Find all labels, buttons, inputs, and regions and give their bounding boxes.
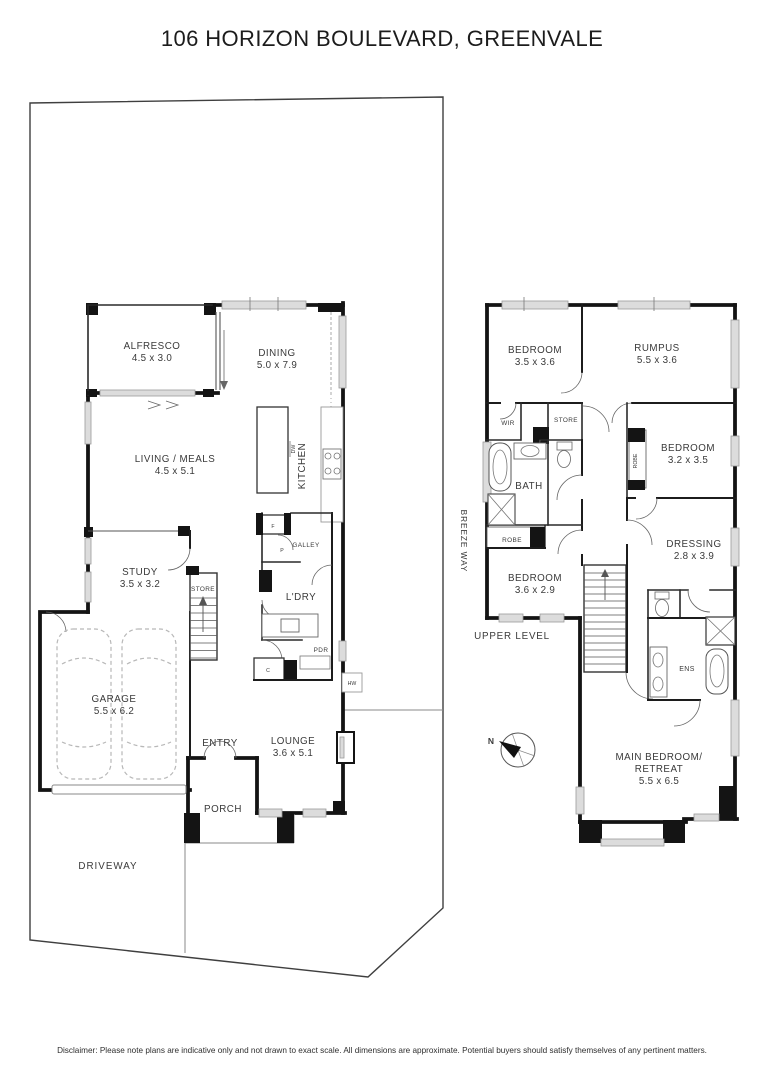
ground-stairs: STORE bbox=[186, 566, 217, 660]
vanity-icon bbox=[514, 443, 546, 459]
disclaimer-text: Disclaimer: Please note plans are indica… bbox=[0, 1046, 764, 1055]
bedroom2-label: BEDROOM bbox=[661, 443, 715, 454]
dressing-label: DRESSING bbox=[666, 539, 721, 550]
powder-label: PDR bbox=[314, 647, 329, 654]
living-meals-dims: 4.5 x 5.1 bbox=[155, 466, 195, 477]
bedroom3-label: BEDROOM bbox=[508, 573, 562, 584]
main-bedroom-label2: RETREAT bbox=[635, 764, 684, 775]
compass-icon: N bbox=[488, 733, 535, 767]
upper-level-label: UPPER LEVEL bbox=[474, 631, 550, 642]
dressing-dims: 2.8 x 3.9 bbox=[674, 551, 714, 562]
hot-water-label: HW bbox=[348, 681, 357, 687]
upper-floor-plan: BEDROOM 3.5 x 3.6 RUMPUS 5.5 x 3.6 WIR S… bbox=[474, 297, 739, 846]
driveway-label: DRIVEWAY bbox=[78, 861, 137, 872]
toilet-icon bbox=[557, 442, 572, 468]
shower-icon bbox=[488, 494, 515, 525]
entry-label: ENTRY bbox=[202, 738, 238, 749]
lounge-room: LOUNGE 3.6 x 5.1 bbox=[259, 732, 354, 817]
dining-dims: 5.0 x 7.9 bbox=[257, 360, 297, 371]
robe-bedroom2-label: ROBE bbox=[633, 453, 639, 468]
floorplan-svg: DRIVEWAY BREEZE WAY bbox=[0, 0, 764, 1080]
robe-bedroom3-label: ROBE bbox=[502, 537, 522, 544]
bathtub-icon bbox=[489, 443, 511, 491]
garage-dims: 5.5 x 6.2 bbox=[94, 706, 134, 717]
rumpus-dims: 5.5 x 3.6 bbox=[637, 355, 678, 366]
rumpus-room: RUMPUS 5.5 x 3.6 bbox=[612, 343, 735, 423]
toilet-icon bbox=[655, 592, 669, 617]
cupboard-label: C bbox=[266, 668, 270, 674]
lounge-dims: 3.6 x 5.1 bbox=[273, 748, 313, 759]
living-meals-label: LIVING / MEALS bbox=[135, 454, 216, 465]
floorplan-page: 106 HORIZON BOULEVARD, GREENVALE DRIVEWA… bbox=[0, 0, 764, 1080]
rumpus-label: RUMPUS bbox=[634, 343, 679, 354]
garage-label: GARAGE bbox=[92, 694, 137, 705]
site-boundary: DRIVEWAY BREEZE WAY bbox=[30, 97, 468, 977]
bedroom3-room: BEDROOM 3.6 x 2.9 bbox=[508, 573, 562, 596]
kitchen-label: KITCHEN bbox=[297, 443, 308, 490]
living-meals-room: LIVING / MEALS 4.5 x 5.1 bbox=[85, 402, 215, 477]
bedroom3-robe: ROBE bbox=[487, 527, 545, 548]
ground-floor-plan: ALFRESCO 4.5 x 3.0 DINING 5.0 x 7.9 LIVI… bbox=[40, 297, 362, 843]
upper-stairs bbox=[584, 565, 653, 699]
bedroom1-dims: 3.5 x 3.6 bbox=[515, 357, 556, 368]
laundry-label: L'DRY bbox=[286, 592, 316, 603]
double-vanity-icon bbox=[650, 647, 667, 697]
main-bedroom-label1: MAIN BEDROOM/ bbox=[615, 752, 702, 763]
hot-water-unit: HW bbox=[342, 673, 362, 692]
kitchen-island bbox=[257, 407, 288, 493]
compass-north-label: N bbox=[488, 736, 494, 746]
dining-label: DINING bbox=[258, 348, 295, 359]
fridge-label: F bbox=[271, 524, 274, 530]
bedroom1-room: BEDROOM 3.5 x 3.6 bbox=[508, 305, 582, 393]
alfresco-dims: 4.5 x 3.0 bbox=[132, 353, 173, 364]
alfresco-room: ALFRESCO 4.5 x 3.0 bbox=[88, 305, 228, 409]
main-bedroom-dims: 5.5 x 6.5 bbox=[639, 776, 680, 787]
ground-store-label: STORE bbox=[191, 586, 215, 593]
main-bedroom-room: MAIN BEDROOM/ RETREAT 5.5 x 6.5 bbox=[615, 752, 702, 787]
galley-label: GALLEY bbox=[292, 542, 320, 549]
study-dims: 3.5 x 3.2 bbox=[120, 579, 160, 590]
bath-label: BATH bbox=[515, 481, 542, 492]
garage-room: GARAGE 5.5 x 6.2 bbox=[46, 612, 186, 794]
study-room: STUDY 3.5 x 3.2 bbox=[85, 526, 190, 602]
pantry-label: P bbox=[280, 548, 284, 554]
study-label: STUDY bbox=[122, 567, 158, 578]
alfresco-label: ALFRESCO bbox=[124, 341, 181, 352]
galley-laundry-block: F P GALLEY L'DRY PDR C bbox=[254, 513, 332, 680]
laundry-sink bbox=[281, 619, 299, 632]
ensuite-room: ENS bbox=[648, 617, 735, 726]
breezeway-label: BREEZE WAY bbox=[459, 510, 468, 573]
bedroom2-dims: 3.2 x 3.5 bbox=[668, 455, 709, 466]
bedroom3-dims: 3.6 x 2.9 bbox=[515, 585, 555, 596]
bathtub-icon bbox=[706, 649, 728, 694]
bedroom1-label: BEDROOM bbox=[508, 345, 562, 356]
ensuite-label: ENS bbox=[679, 666, 695, 673]
shower-icon bbox=[706, 617, 735, 645]
cooktop-icon bbox=[323, 449, 341, 479]
wir-store-row: WIR STORE bbox=[487, 403, 609, 444]
lounge-label: LOUNGE bbox=[271, 736, 315, 747]
wir-label: WIR bbox=[501, 420, 515, 427]
upper-store-label: STORE bbox=[554, 417, 578, 424]
bedroom2-room: ROBE BEDROOM 3.2 x 3.5 bbox=[627, 403, 735, 519]
porch-label: PORCH bbox=[204, 804, 242, 815]
dressing-room: DRESSING 2.8 x 3.9 bbox=[627, 498, 735, 672]
